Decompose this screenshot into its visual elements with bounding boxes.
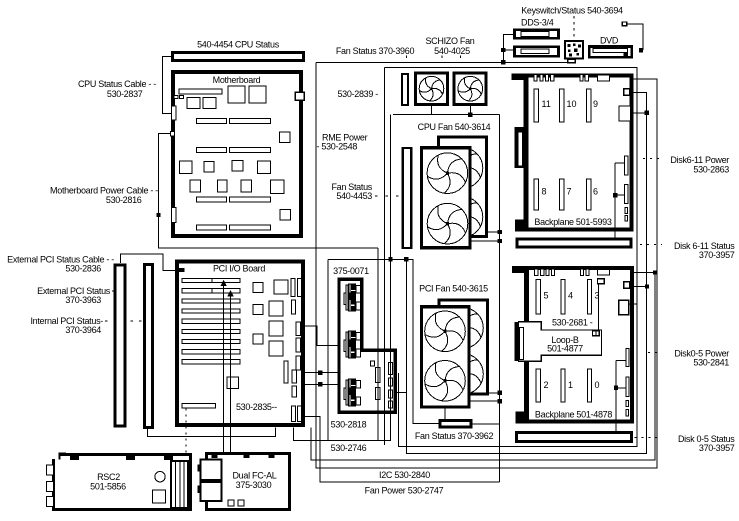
svg-text:1: 1: [568, 380, 573, 390]
svg-text:Motherboard Power Cable - -: Motherboard Power Cable - -: [50, 186, 158, 196]
svg-text:0: 0: [595, 380, 600, 390]
svg-text:375-3030: 375-3030: [236, 480, 272, 490]
svg-text:CPU Fan 540-3614: CPU Fan 540-3614: [418, 122, 491, 132]
svg-text:Motherboard: Motherboard: [213, 75, 261, 85]
svg-text:6: 6: [593, 187, 598, 197]
svg-text:530-2836: 530-2836: [65, 264, 101, 274]
svg-text:9: 9: [593, 99, 598, 109]
svg-text:501-5856: 501-5856: [90, 482, 126, 492]
svg-text:Backplane 501-5993: Backplane 501-5993: [534, 217, 611, 227]
svg-text:375-0071: 375-0071: [333, 266, 369, 276]
svg-text:Disk6-11 Power: Disk6-11 Power: [670, 155, 729, 165]
svg-text:5: 5: [544, 291, 549, 301]
svg-text:530-2841: 530-2841: [693, 358, 729, 368]
svg-text:530-2839 -: 530-2839 -: [337, 89, 378, 99]
svg-text:PCI I/O Board: PCI I/O Board: [213, 264, 265, 274]
svg-text:- 530-2548: - 530-2548: [317, 141, 358, 151]
svg-text:540-4453: 540-4453: [336, 191, 372, 201]
svg-text:Dual FC-AL: Dual FC-AL: [232, 471, 276, 481]
svg-text:4: 4: [568, 291, 573, 301]
svg-text:530-2816: 530-2816: [106, 195, 142, 205]
svg-text:8: 8: [542, 187, 547, 197]
svg-text:PCI Fan 540-3615: PCI Fan 540-3615: [419, 284, 488, 294]
svg-text:7: 7: [567, 187, 572, 197]
svg-text:Fan Status 370-3962: Fan Status 370-3962: [415, 431, 494, 441]
svg-text:DDS-3/4: DDS-3/4: [521, 18, 554, 28]
svg-text:540-4454 CPU Status: 540-4454 CPU Status: [197, 40, 280, 50]
svg-text:RSC2: RSC2: [97, 472, 120, 482]
svg-text:DVD: DVD: [600, 36, 619, 46]
svg-text:2: 2: [544, 380, 549, 390]
svg-text:10: 10: [567, 99, 577, 109]
svg-text:370-3963: 370-3963: [65, 295, 101, 305]
svg-text:530-2681 -: 530-2681 -: [552, 318, 593, 328]
svg-text:530-2746: 530-2746: [331, 443, 367, 453]
svg-text:Keyswitch/Status 540-3694: Keyswitch/Status 540-3694: [521, 6, 623, 16]
svg-text:Fan Power 530-2747: Fan Power 530-2747: [365, 486, 444, 496]
svg-text:CPU Status Cable - -: CPU Status Cable - -: [78, 79, 156, 89]
svg-text:370-3957: 370-3957: [699, 443, 735, 453]
svg-text:Fan Status 370-3960: Fan Status 370-3960: [336, 46, 415, 56]
svg-text:370-3957: 370-3957: [699, 250, 735, 260]
svg-text:SCHIZO Fan: SCHIZO Fan: [425, 36, 474, 46]
svg-text:530-2835--: 530-2835--: [236, 402, 277, 412]
svg-text:370-3964: 370-3964: [65, 325, 101, 335]
svg-text:11: 11: [542, 99, 551, 109]
svg-text:540-4025: 540-4025: [434, 46, 470, 56]
svg-text:Backplane 501-4878: Backplane 501-4878: [535, 410, 612, 420]
svg-text:I2C 530-2840: I2C 530-2840: [379, 470, 430, 480]
svg-text:530-2818: 530-2818: [331, 420, 367, 430]
svg-text:501-4877: 501-4877: [547, 344, 583, 354]
svg-text:530-2837: 530-2837: [107, 89, 143, 99]
svg-text:530-2863: 530-2863: [693, 165, 729, 175]
